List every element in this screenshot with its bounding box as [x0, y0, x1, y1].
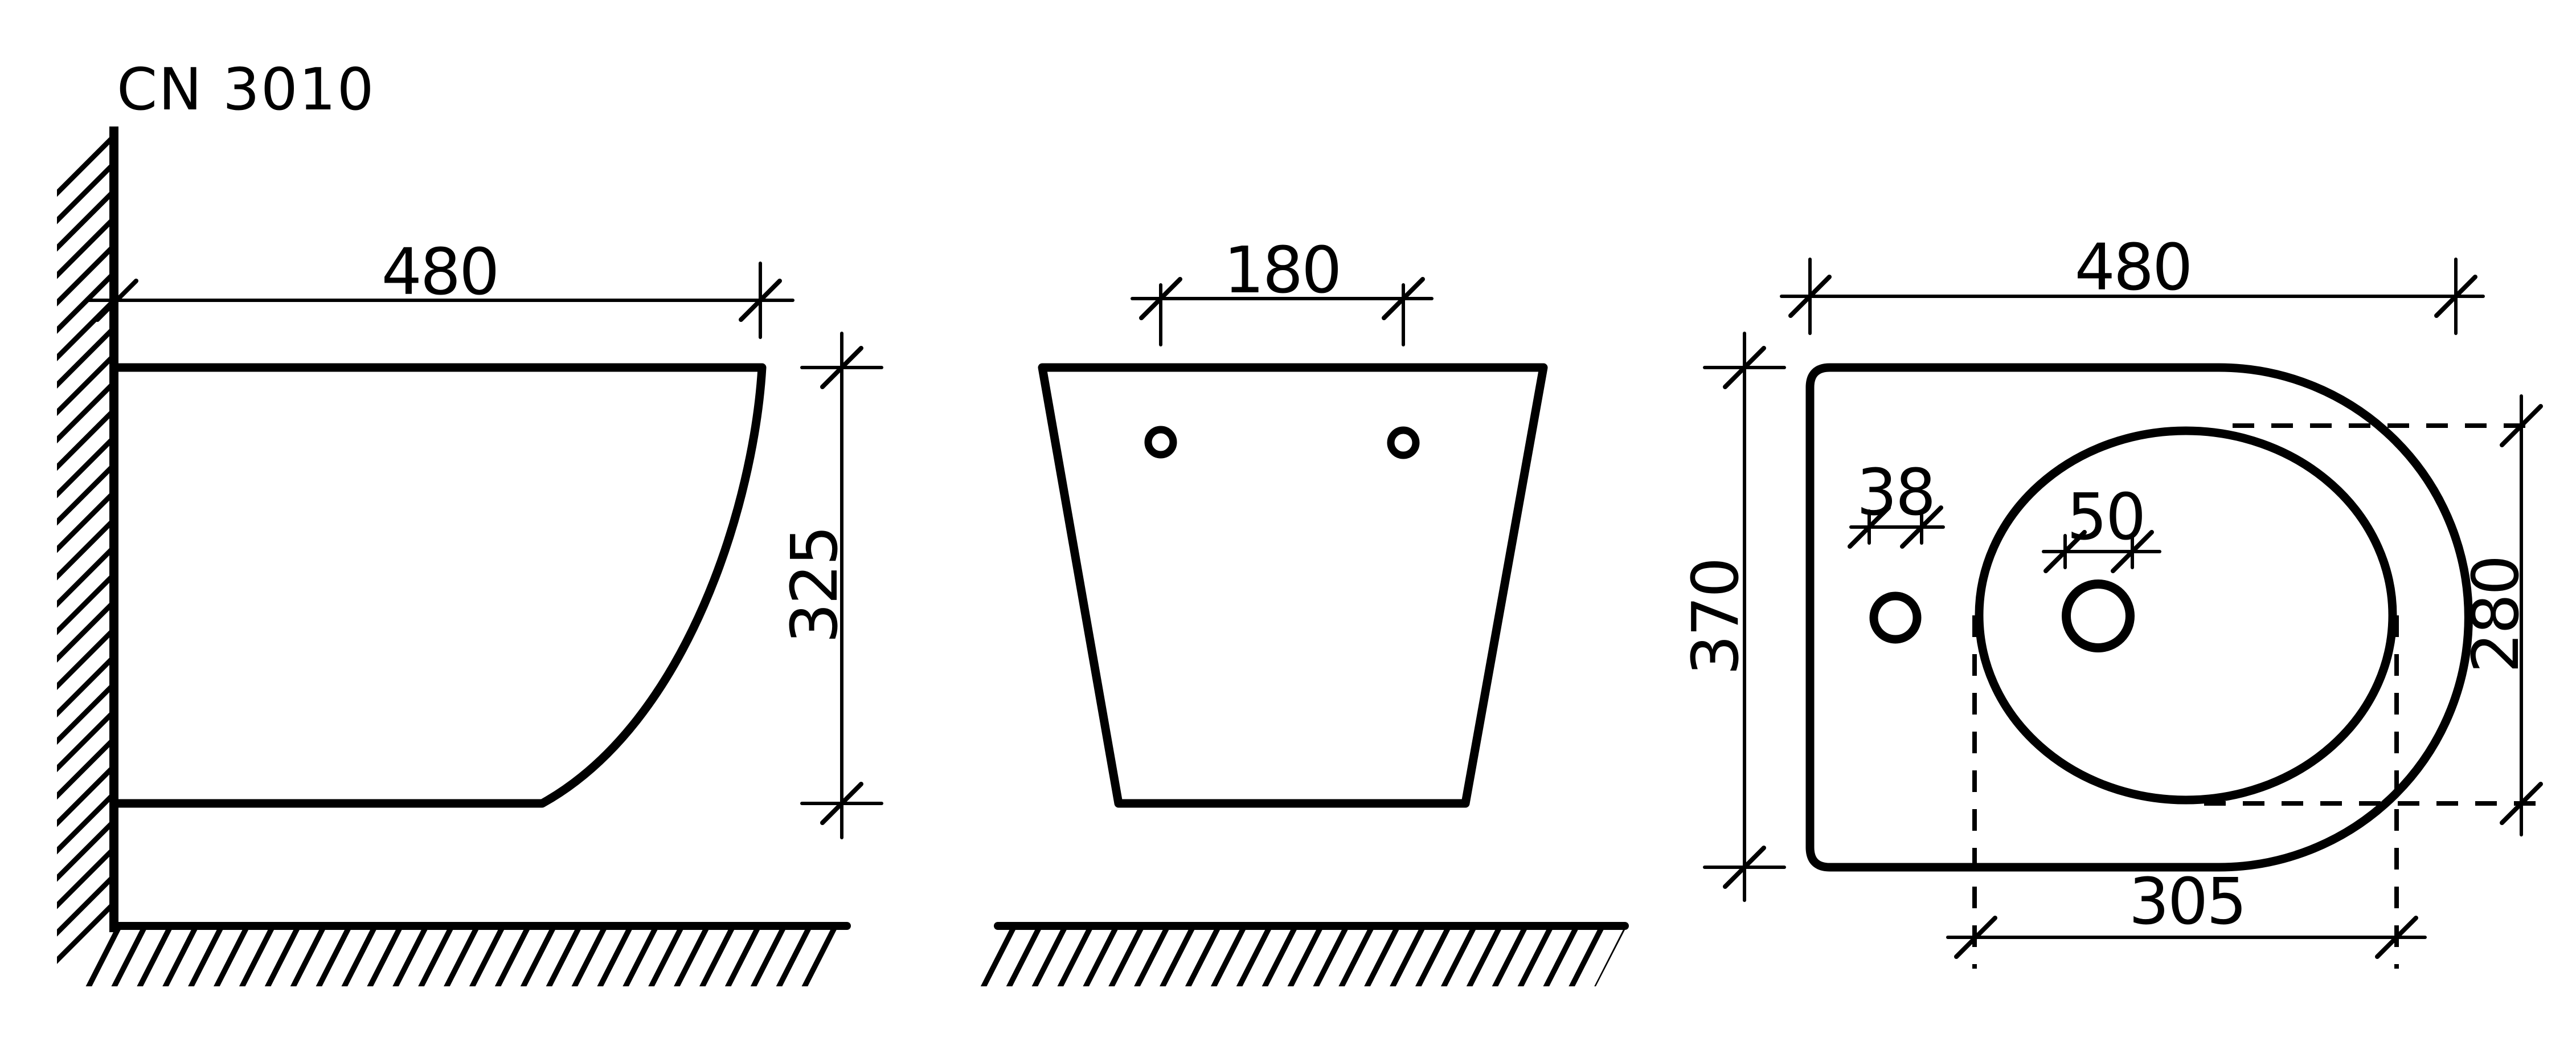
- technical-drawing: CN 3010 480 325: [0, 0, 2576, 1049]
- floor-hatch-side: [85, 930, 847, 986]
- dimension-label-side-width: 480: [382, 235, 498, 309]
- dimension-label-bolt-spacing: 180: [1224, 234, 1341, 308]
- dimension-label-side-height: 325: [778, 527, 852, 644]
- dimension-label-bowl-depth: 280: [2459, 557, 2533, 674]
- dimension-label-small-hole: 38: [1857, 456, 1935, 530]
- dimension-label-top-depth: 370: [1679, 559, 1753, 676]
- floor-hatch-front: [969, 930, 1625, 986]
- drawing-sheet: CN 3010 480 325: [0, 0, 2576, 1049]
- dimension-label-bowl-length: 305: [2129, 865, 2246, 939]
- dimension-label-large-hole: 50: [2067, 480, 2145, 554]
- drawing-title: CN 3010: [117, 56, 375, 124]
- dimension-label-top-width: 480: [2075, 231, 2192, 305]
- wall-hatch: [57, 132, 114, 983]
